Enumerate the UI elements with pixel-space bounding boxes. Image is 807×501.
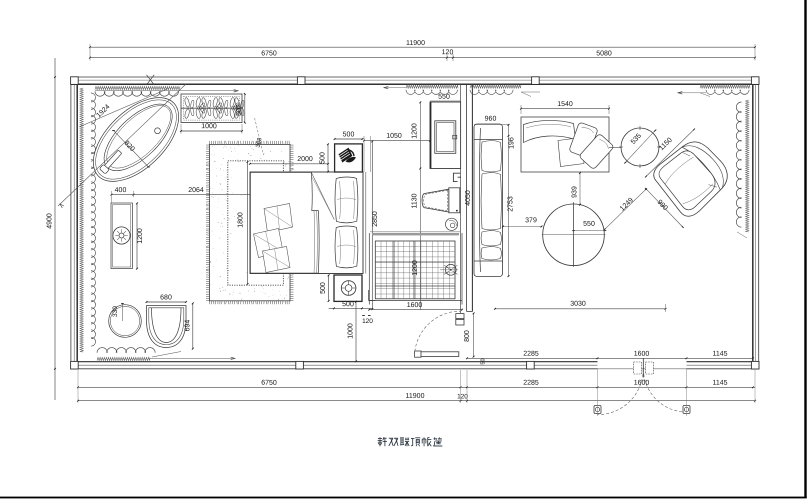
svg-text:2064: 2064 (188, 187, 204, 194)
svg-text:120: 120 (442, 49, 454, 56)
svg-text:1200: 1200 (137, 228, 144, 244)
svg-text:4050: 4050 (465, 190, 472, 206)
svg-text:50: 50 (481, 358, 487, 364)
svg-text:1200: 1200 (412, 123, 419, 139)
svg-text:196: 196 (509, 137, 516, 149)
svg-text:500: 500 (343, 131, 355, 138)
svg-text:1600: 1600 (634, 380, 650, 387)
svg-text:1600: 1600 (634, 351, 650, 358)
svg-text:11900: 11900 (406, 393, 425, 400)
svg-text:5080: 5080 (596, 50, 612, 57)
svg-text:500: 500 (319, 152, 326, 164)
svg-text:1130: 1130 (412, 193, 419, 208)
svg-text:502: 502 (236, 104, 243, 116)
svg-text:1200: 1200 (412, 260, 419, 276)
svg-text:120: 120 (457, 393, 468, 400)
svg-text:500: 500 (342, 301, 354, 308)
svg-text:400: 400 (115, 187, 127, 194)
svg-text:1800: 1800 (238, 212, 245, 228)
svg-text:2753: 2753 (508, 196, 515, 212)
svg-text:6750: 6750 (261, 380, 277, 387)
svg-text:1050: 1050 (386, 133, 402, 140)
svg-text:680: 680 (160, 294, 172, 301)
svg-text:6750: 6750 (261, 50, 277, 57)
svg-text:11900: 11900 (406, 40, 425, 47)
svg-text:1145: 1145 (712, 351, 727, 358)
svg-text:800: 800 (464, 330, 471, 342)
svg-text:2850: 2850 (372, 211, 379, 227)
svg-text:2000: 2000 (297, 156, 313, 163)
svg-text:939: 939 (571, 186, 578, 198)
svg-text:1000: 1000 (347, 323, 354, 339)
svg-text:500: 500 (320, 282, 327, 294)
svg-text:379: 379 (525, 217, 537, 224)
svg-text:4900: 4900 (47, 213, 54, 229)
svg-text:330: 330 (112, 306, 119, 317)
svg-text:1600: 1600 (407, 302, 423, 309)
svg-text:2285: 2285 (523, 351, 539, 358)
svg-text:1000: 1000 (201, 123, 217, 130)
svg-text:1540: 1540 (557, 101, 573, 108)
svg-text:120: 120 (362, 318, 373, 325)
svg-text:694: 694 (185, 320, 192, 332)
svg-text:960: 960 (485, 116, 497, 123)
svg-text:550: 550 (583, 221, 595, 228)
svg-text:1145: 1145 (712, 380, 727, 387)
svg-text:3030: 3030 (570, 301, 586, 308)
svg-text:2285: 2285 (523, 380, 539, 387)
